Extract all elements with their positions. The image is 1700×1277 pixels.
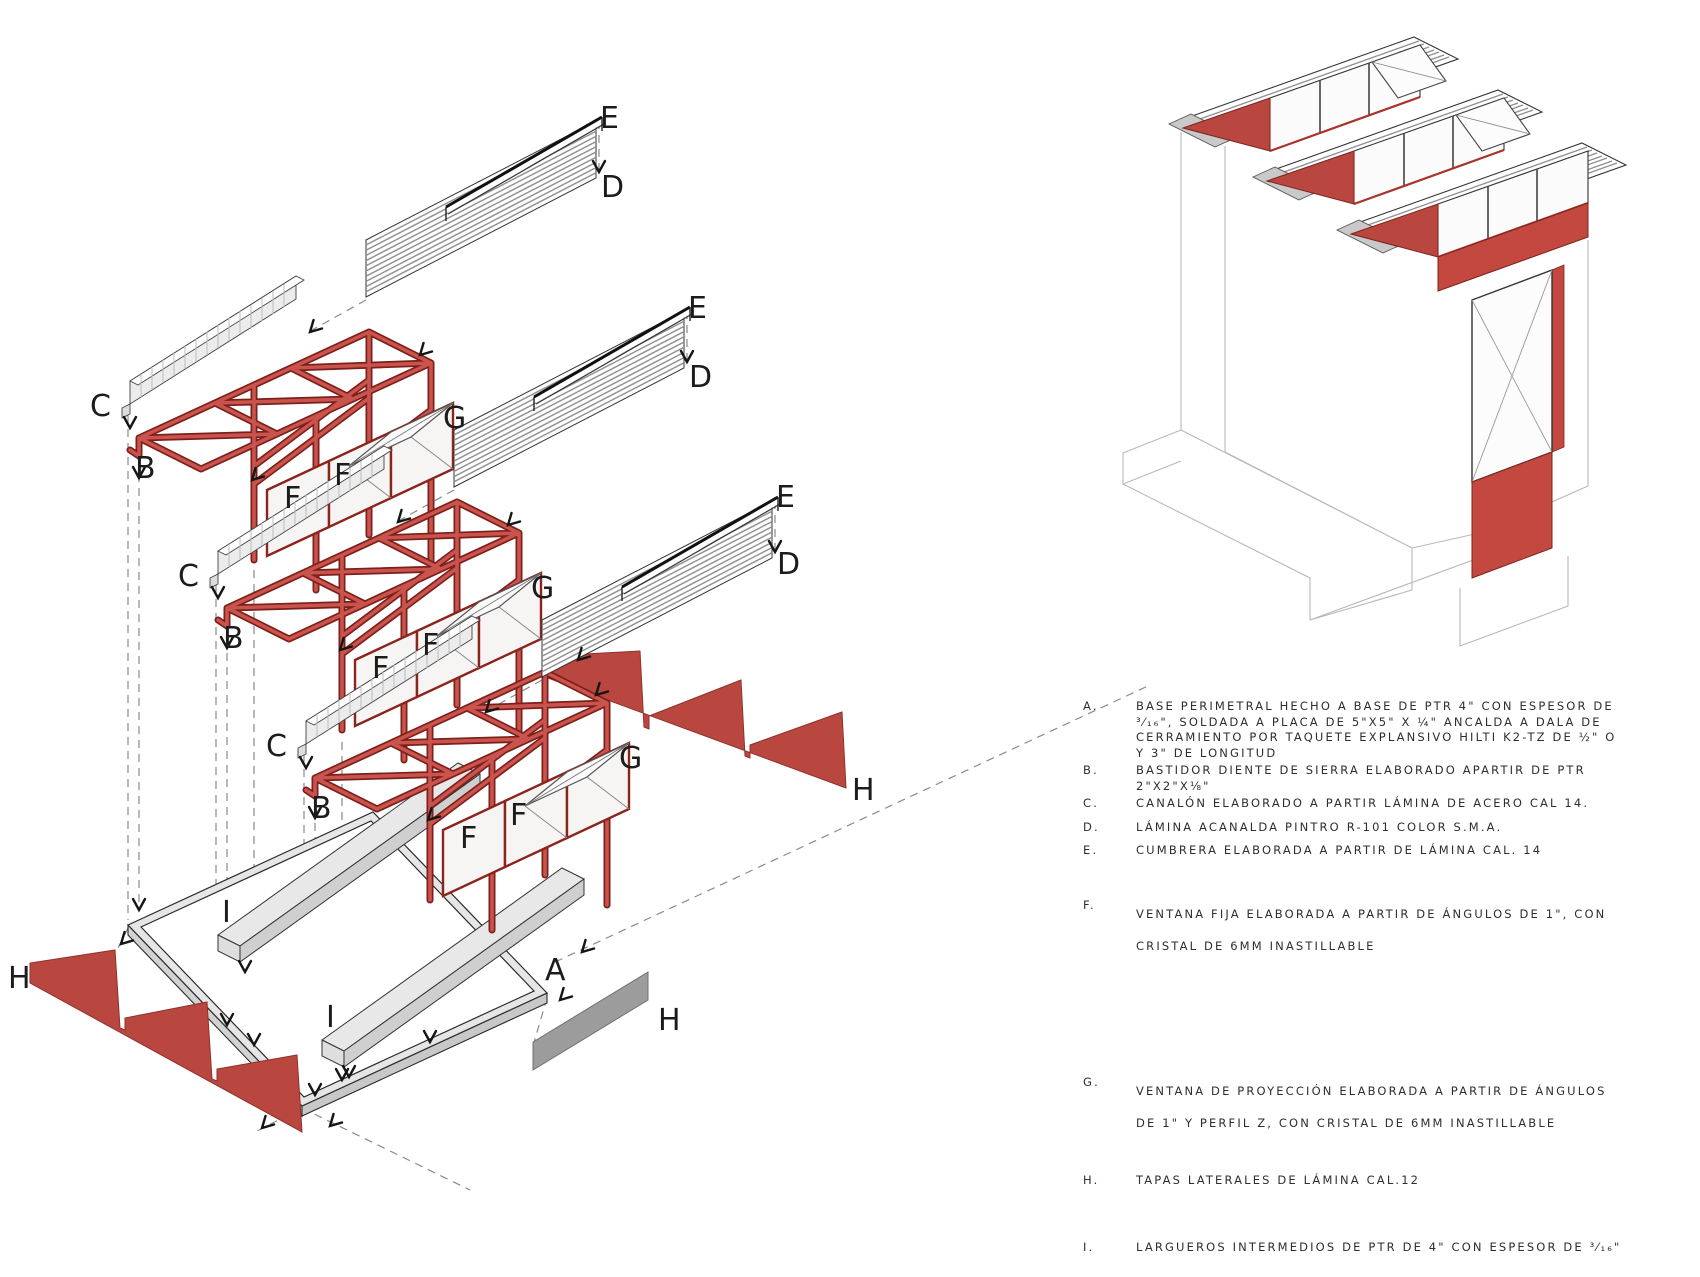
label-B-3: B — [311, 791, 332, 826]
label-G-1: G — [443, 401, 466, 436]
facade-window — [1472, 265, 1564, 578]
label-I-2: I — [326, 1000, 335, 1035]
label-A: A — [545, 953, 566, 988]
label-H-right: H — [852, 773, 875, 808]
label-C-1: C — [90, 389, 111, 424]
sawtooth-roof-construction-sheet: E E E D D D C C C B B B G G G F F F F F … — [0, 0, 1700, 1277]
label-G-2: G — [531, 571, 554, 606]
module-1 — [122, 117, 604, 590]
label-F-3a: F — [510, 798, 527, 833]
label-E-1: E — [600, 101, 619, 136]
label-F-2a: F — [422, 628, 439, 663]
label-H-left: H — [8, 961, 31, 996]
label-D-3: D — [777, 547, 800, 582]
label-C-2: C — [178, 559, 199, 594]
assembled-view — [1123, 37, 1626, 646]
label-C-3: C — [266, 729, 287, 764]
label-E-3: E — [776, 480, 795, 515]
label-D-2: D — [689, 360, 712, 395]
label-B-2: B — [223, 621, 244, 656]
label-F-1b: F — [284, 481, 301, 516]
label-D-1: D — [601, 170, 624, 205]
label-G-3: G — [619, 741, 642, 776]
label-F-2b: F — [372, 651, 389, 686]
label-H-flat: H — [658, 1003, 681, 1038]
exploded-axonometric-drawing: E E E D D D C C C B B B G G G F F F F F … — [0, 0, 1700, 1277]
label-I-1: I — [222, 895, 231, 930]
label-E-2: E — [688, 291, 707, 326]
label-B-1: B — [135, 451, 156, 486]
label-F-1a: F — [334, 458, 351, 493]
label-F-3b: F — [460, 821, 477, 856]
